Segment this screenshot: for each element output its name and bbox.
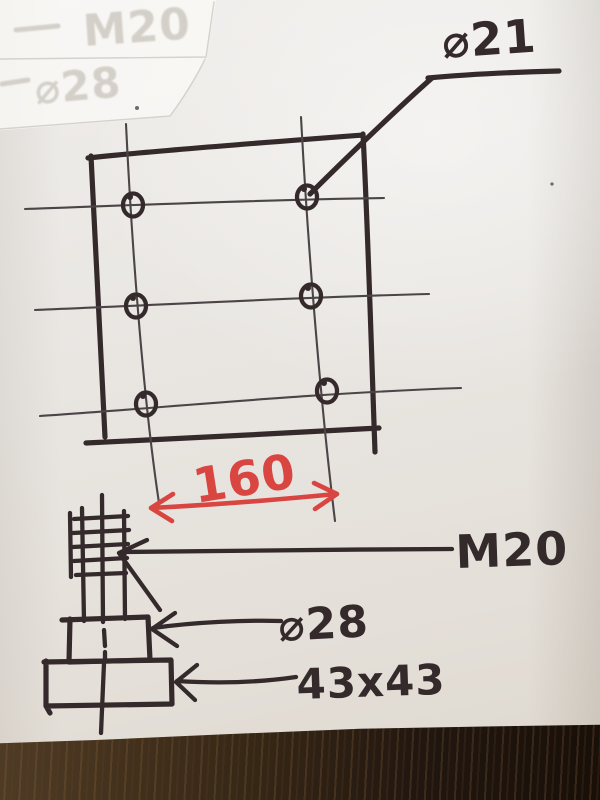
- bolt-hole-ink-blob: [130, 295, 136, 301]
- width-dimension: 160: [151, 443, 337, 521]
- base-outline: [44, 660, 172, 713]
- bolt-hole-ink-blob: [140, 393, 146, 399]
- grid-line-row-1: [25, 198, 384, 209]
- bolt-hole-ink-blob: [321, 380, 327, 386]
- dia21-label: ⌀21: [440, 8, 538, 68]
- bolt-hole: [317, 380, 337, 403]
- bolt-hole-ink-blob: [305, 285, 311, 291]
- bolt-hole-ink-blob: [301, 186, 307, 192]
- m20-leader-line: [119, 540, 452, 610]
- m20-label: M20: [454, 521, 569, 579]
- photo-of-hand-sketch: M20 ⌀28: [0, 0, 600, 800]
- base-size-label: 43x43: [296, 655, 447, 709]
- ink-speck: [135, 106, 139, 110]
- bolt-centerline: [101, 495, 105, 733]
- dia21-leader-line: [310, 71, 559, 194]
- dia28-label: ⌀28: [277, 596, 370, 652]
- bolt-hole-ink-blob: [127, 194, 133, 200]
- stud-outline: [70, 508, 125, 621]
- base-size-leader-line: [176, 665, 296, 700]
- faint-impression-dia28: ⌀28: [33, 58, 124, 114]
- dia28-leader-line: [152, 613, 281, 646]
- bolt-view: M20 ⌀28 43x43: [44, 495, 569, 733]
- ink-speck: [550, 182, 553, 185]
- bolt-hole: [301, 285, 321, 308]
- faint-impression-m20: M20: [81, 0, 192, 57]
- width-dimension-label: 160: [189, 443, 300, 514]
- sketch-drawing: M20 ⌀28: [0, 0, 600, 800]
